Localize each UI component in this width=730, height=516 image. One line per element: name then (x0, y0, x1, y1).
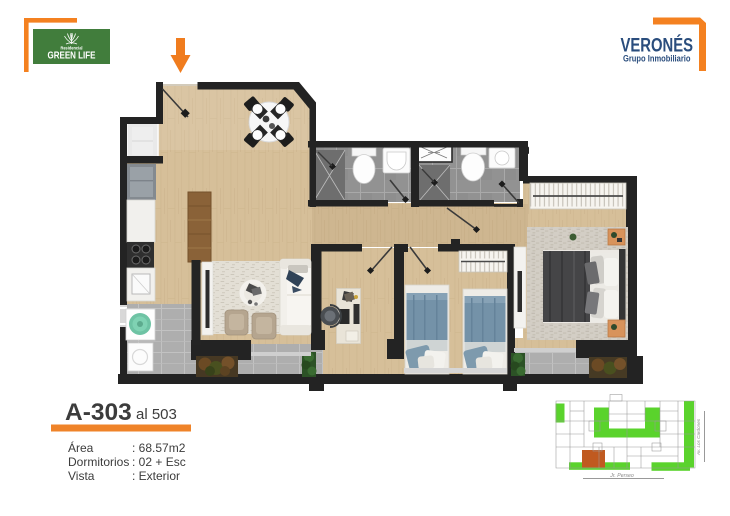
svg-text:al 503: al 503 (136, 406, 177, 423)
svg-text:Vista: Vista (68, 469, 95, 483)
svg-text:Grupo Inmobiliario: Grupo Inmobiliario (623, 54, 691, 64)
svg-text:A-303: A-303 (65, 399, 132, 426)
svg-text:Área: Área (68, 440, 94, 455)
svg-text:: Exterior: : Exterior (132, 469, 180, 483)
svg-text:: 68.57m2: : 68.57m2 (132, 441, 186, 455)
svg-text:Av. Los Cardones: Av. Los Cardones (696, 418, 701, 456)
svg-text:Dormitorios: Dormitorios (68, 455, 129, 469)
svg-text:GREEN LIFE: GREEN LIFE (48, 51, 96, 62)
svg-text:Jr. Perseo: Jr. Perseo (609, 473, 634, 479)
svg-text:: 02 + Esc: : 02 + Esc (132, 455, 186, 469)
